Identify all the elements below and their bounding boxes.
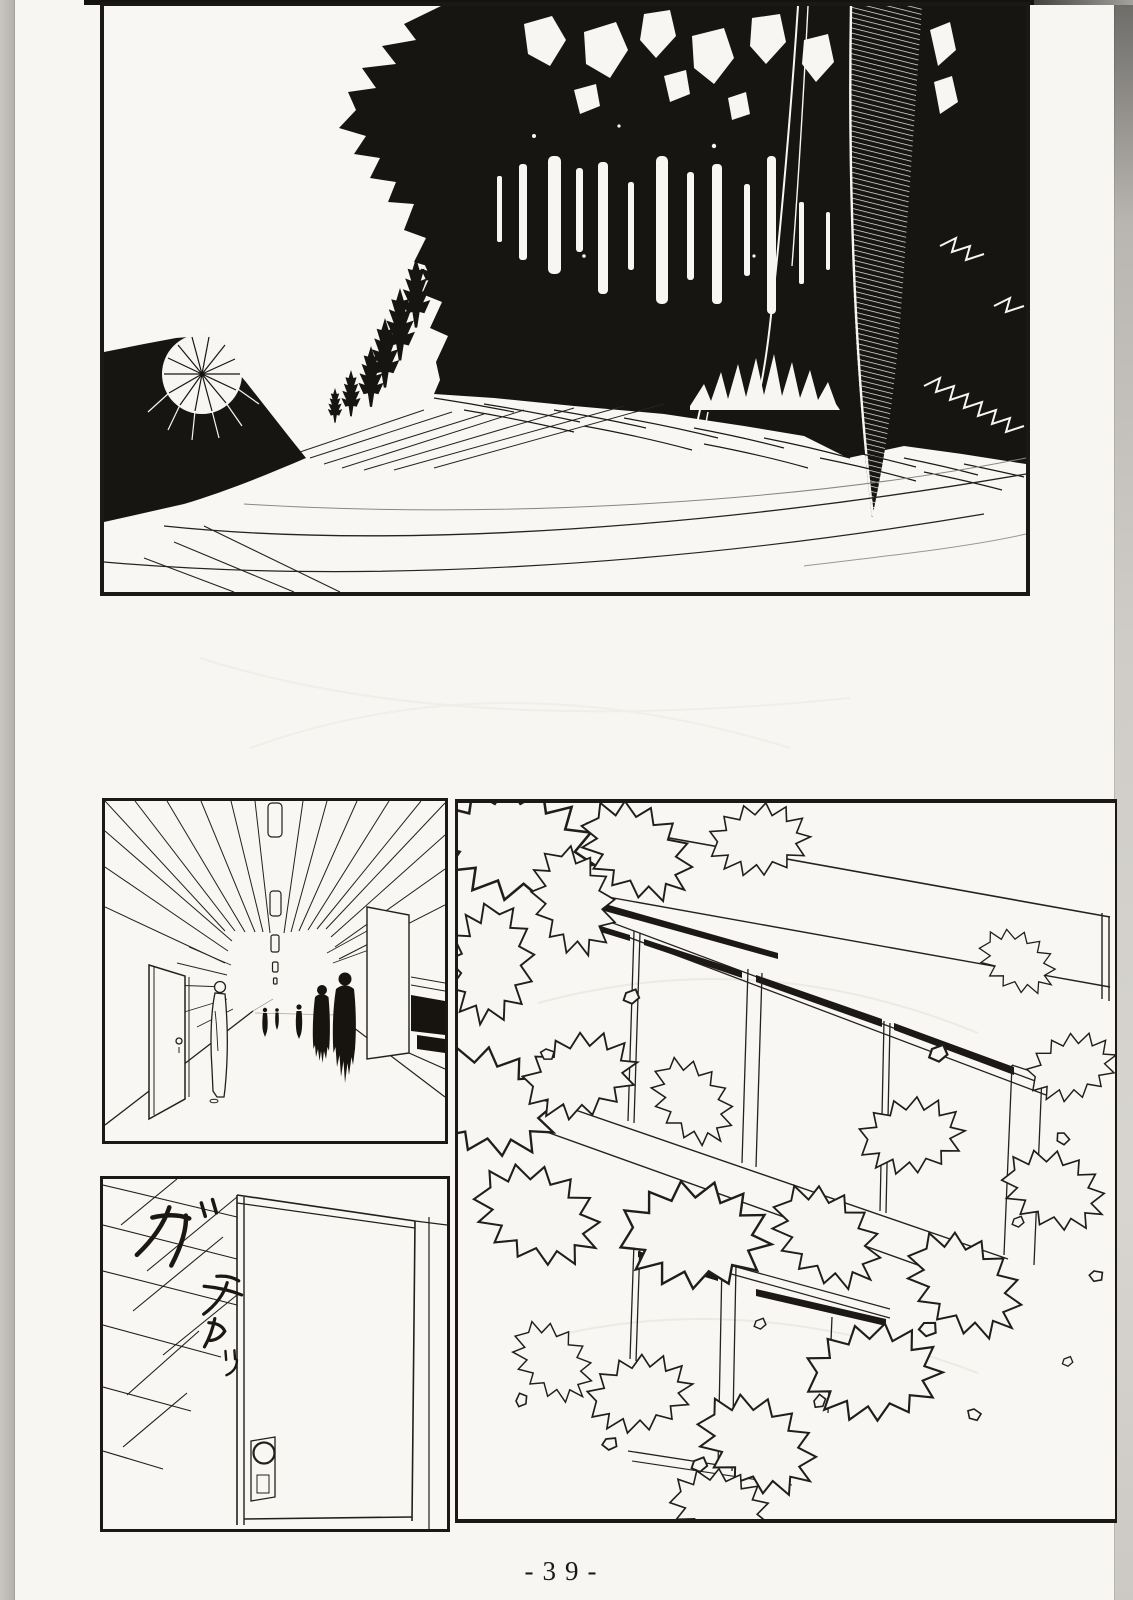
gutter-ghost-marks (150, 598, 1030, 793)
panel-corridor (102, 798, 448, 1144)
scanned-manga-page: { "page": { "kind": "scanned manga page"… (0, 0, 1133, 1600)
panel-building (455, 799, 1117, 1523)
building-art (458, 803, 1115, 1519)
door-knob-small (176, 1038, 182, 1044)
forest-art (104, 6, 1026, 592)
page-edge-shadow-left (0, 0, 15, 1600)
panel-door (100, 1176, 450, 1532)
page-number: -39- (455, 1556, 675, 1587)
service-counter (367, 907, 445, 1069)
foliage (458, 803, 1115, 1519)
white-robed-figure (210, 982, 227, 1103)
corridor-door (149, 965, 189, 1119)
hill-starburst (104, 334, 306, 522)
door-knob (251, 1437, 275, 1501)
pencil-ghosts (528, 979, 978, 1373)
door-art (103, 1179, 447, 1529)
path-strokes (300, 404, 664, 470)
panel-forest (100, 2, 1030, 596)
sfx-cha (176, 1269, 266, 1377)
silhouette-figures (262, 973, 356, 1084)
corridor-art (105, 801, 445, 1141)
scan-top-edge-fade (1034, 0, 1133, 5)
ceiling-lights (268, 803, 282, 984)
sfx-ga (136, 1185, 219, 1273)
